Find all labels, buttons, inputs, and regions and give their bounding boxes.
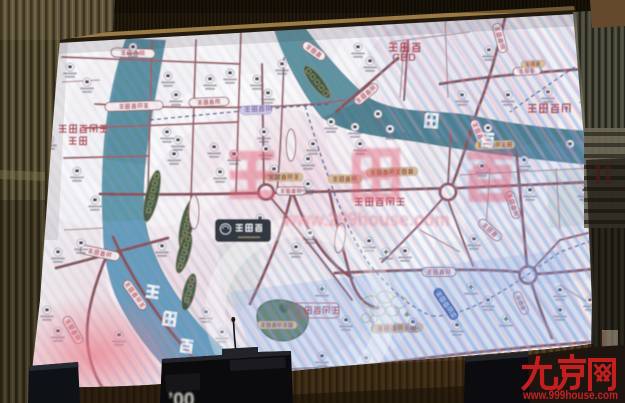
svg-text:’00: ’00 <box>168 390 194 403</box>
svg-text:www.999house.com: www.999house.com <box>522 390 618 402</box>
